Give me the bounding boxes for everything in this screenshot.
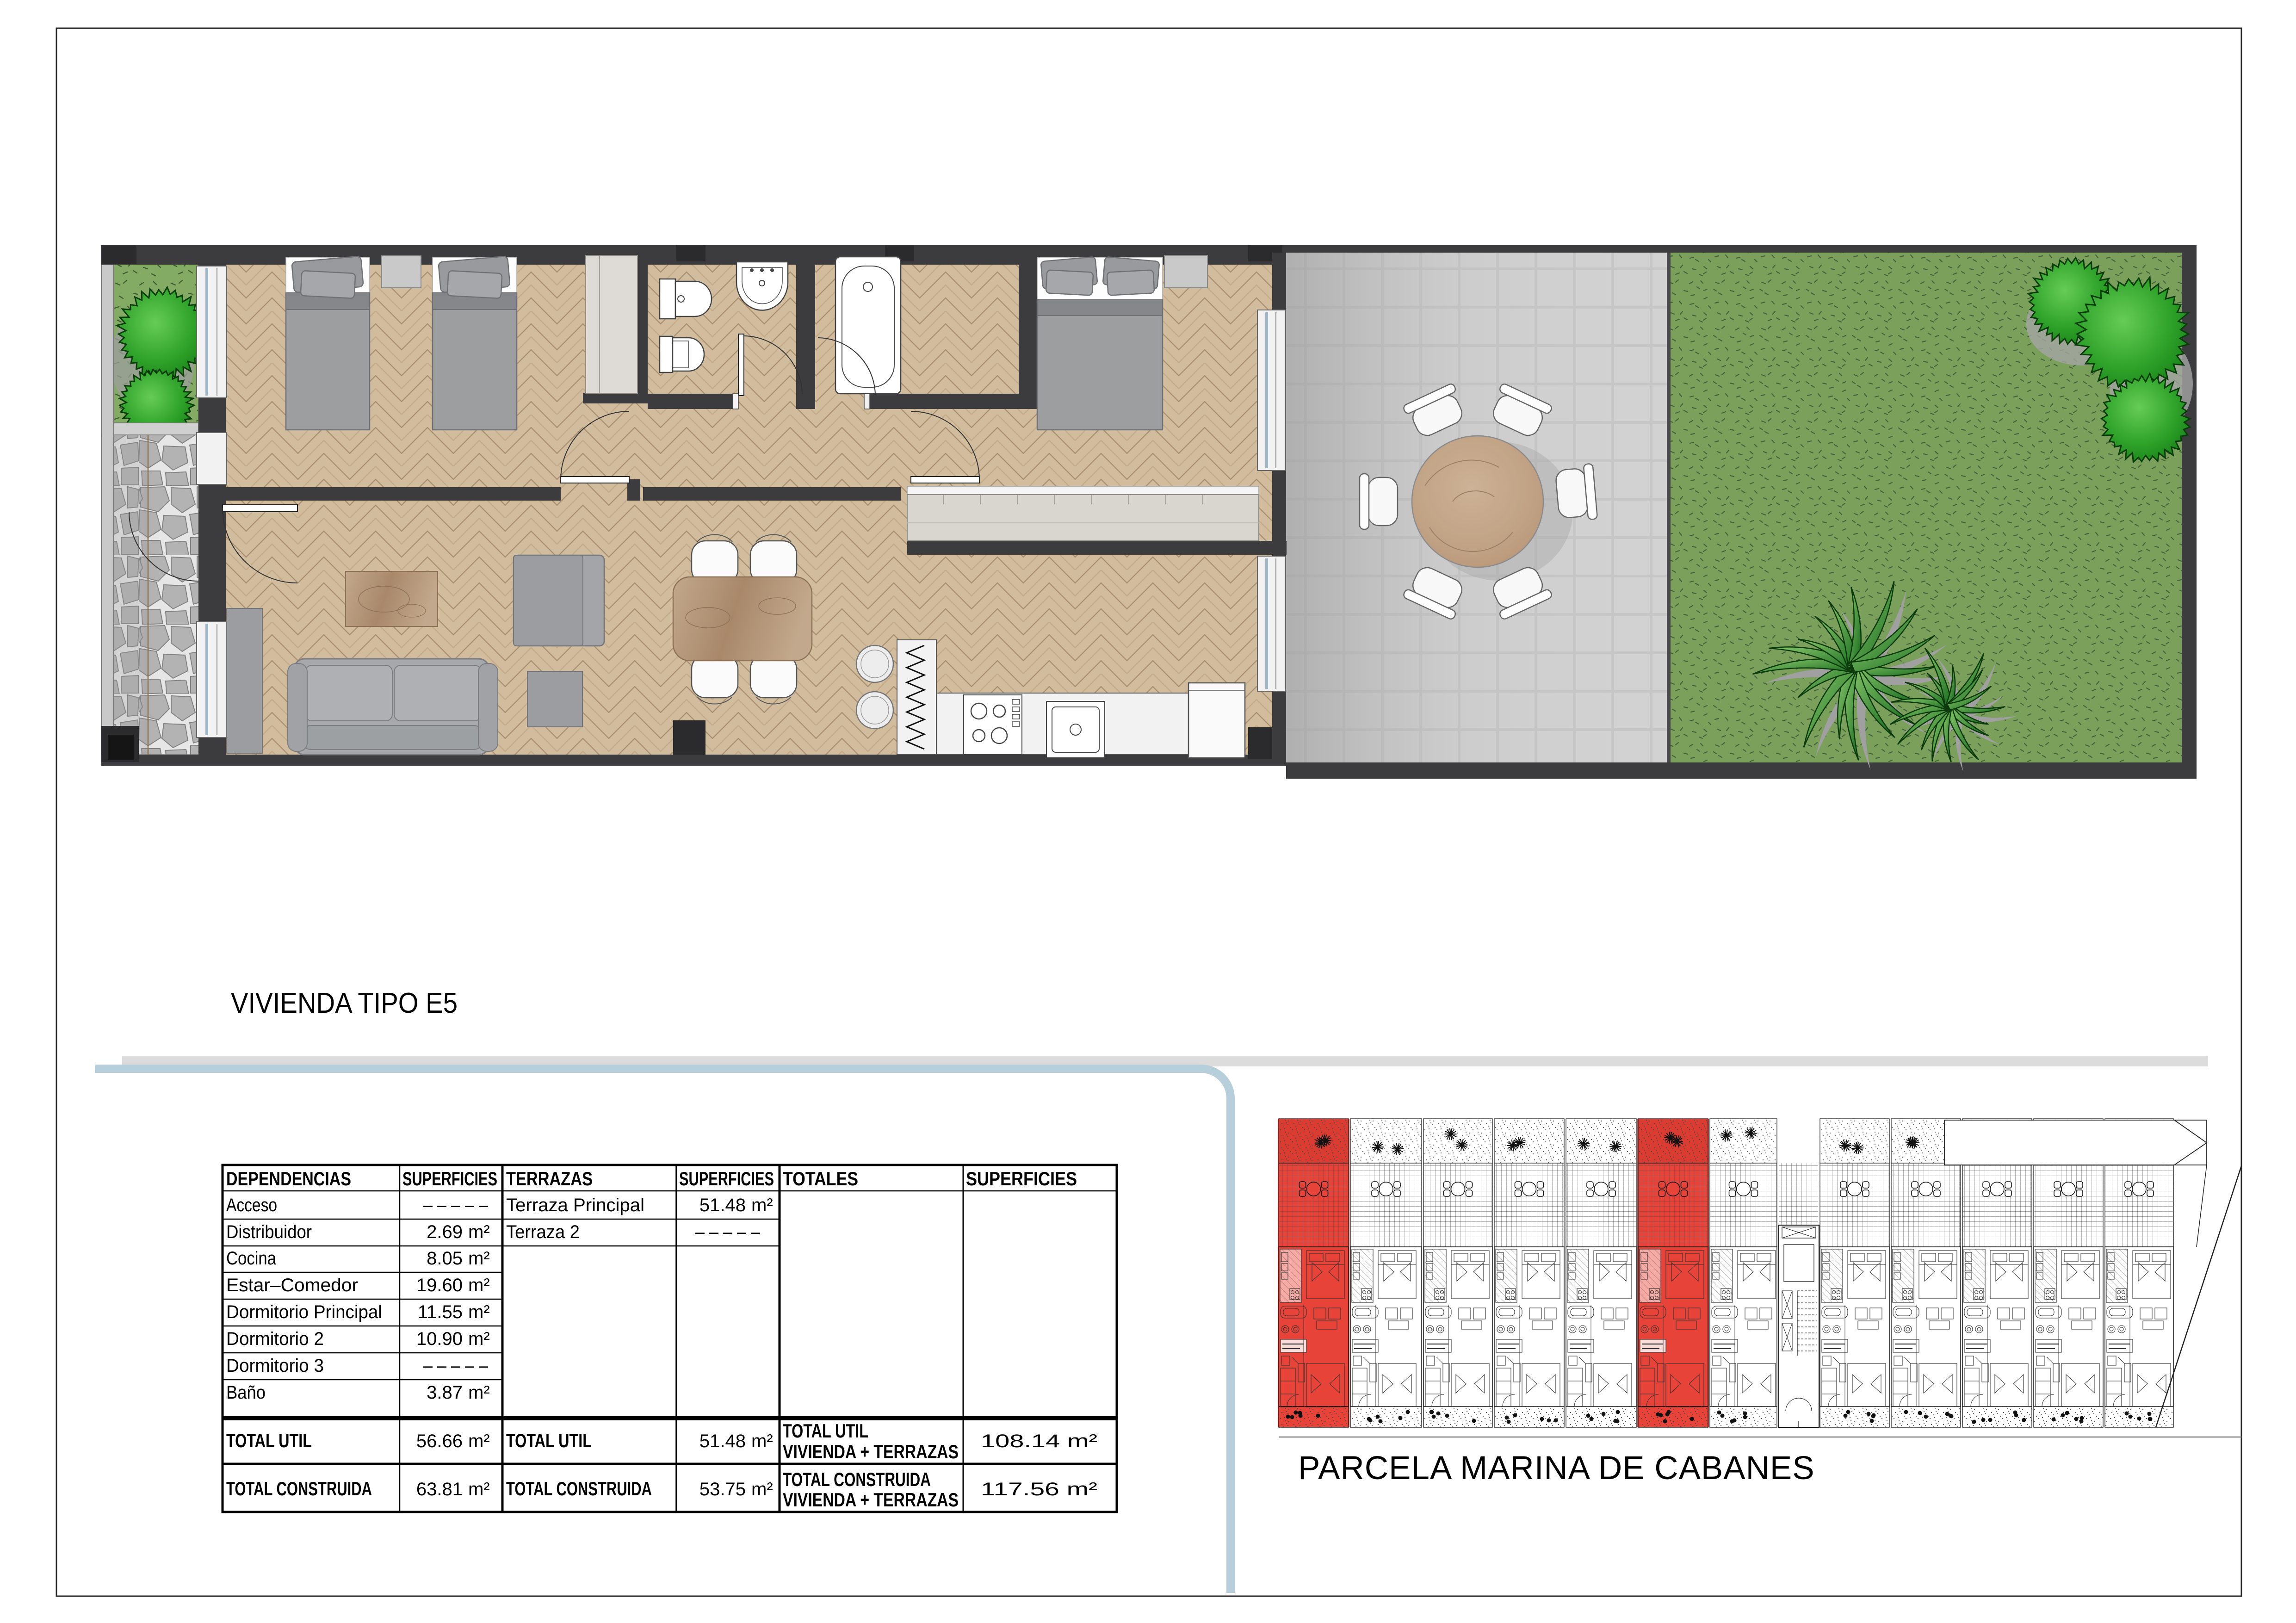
svg-text:– – – – –: – – – – – <box>423 1195 489 1215</box>
svg-text:Cocina: Cocina <box>226 1248 277 1269</box>
svg-text:SUPERFICIES: SUPERFICIES <box>679 1168 774 1189</box>
svg-text:Dormitorio 3: Dormitorio 3 <box>226 1356 324 1376</box>
svg-text:117.56 m²: 117.56 m² <box>981 1479 1097 1499</box>
svg-text:TOTAL CONSTRUIDA: TOTAL CONSTRUIDA <box>783 1468 931 1490</box>
svg-text:8.05: 8.05 <box>427 1248 463 1269</box>
svg-text:TERRAZAS: TERRAZAS <box>506 1168 593 1189</box>
svg-text:Dormitorio 2: Dormitorio 2 <box>226 1329 324 1349</box>
svg-text:– – – – –: – – – – – <box>695 1222 761 1242</box>
svg-text:53.75: 53.75 <box>699 1479 746 1499</box>
svg-text:Terraza Principal: Terraza Principal <box>506 1195 644 1215</box>
svg-text:PARCELA MARINA DE CABANES: PARCELA MARINA DE CABANES <box>1298 1450 1815 1487</box>
svg-text:Dormitorio Principal: Dormitorio Principal <box>226 1302 382 1322</box>
svg-text:m²: m² <box>751 1195 773 1215</box>
svg-text:51.48: 51.48 <box>699 1431 746 1451</box>
svg-text:m²: m² <box>751 1479 773 1499</box>
svg-text:TOTALES: TOTALES <box>783 1168 858 1189</box>
svg-text:TOTAL UTIL: TOTAL UTIL <box>506 1430 592 1451</box>
svg-text:63.81: 63.81 <box>416 1479 463 1499</box>
svg-text:SUPERFICIES: SUPERFICIES <box>402 1168 497 1189</box>
svg-text:Distribuidor: Distribuidor <box>226 1222 312 1242</box>
svg-text:m²: m² <box>468 1329 490 1349</box>
svg-text:m²: m² <box>468 1431 490 1451</box>
svg-text:51.48: 51.48 <box>699 1195 746 1215</box>
svg-text:m²: m² <box>468 1248 490 1269</box>
svg-text:VIVIENDA TIPO E5: VIVIENDA TIPO E5 <box>231 987 458 1019</box>
svg-text:56.66: 56.66 <box>416 1431 463 1451</box>
svg-text:VIVIENDA + TERRAZAS: VIVIENDA + TERRAZAS <box>783 1489 959 1511</box>
svg-text:m²: m² <box>468 1302 490 1322</box>
svg-text:– – – – –: – – – – – <box>423 1356 489 1376</box>
svg-text:SUPERFICIES: SUPERFICIES <box>966 1168 1077 1189</box>
svg-text:Terraza 2: Terraza 2 <box>506 1222 580 1242</box>
svg-text:3.87: 3.87 <box>427 1382 463 1403</box>
svg-text:Baño: Baño <box>226 1382 266 1403</box>
svg-text:19.60: 19.60 <box>416 1275 463 1295</box>
svg-text:m²: m² <box>468 1222 490 1242</box>
svg-text:Acceso: Acceso <box>226 1195 277 1215</box>
svg-text:10.90: 10.90 <box>416 1329 463 1349</box>
svg-text:m²: m² <box>468 1275 490 1295</box>
svg-text:TOTAL UTIL: TOTAL UTIL <box>783 1420 868 1442</box>
svg-text:11.55: 11.55 <box>418 1302 463 1322</box>
svg-text:VIVIENDA + TERRAZAS: VIVIENDA + TERRAZAS <box>783 1441 959 1462</box>
svg-text:m²: m² <box>751 1431 773 1451</box>
svg-text:TOTAL UTIL: TOTAL UTIL <box>226 1430 312 1451</box>
svg-text:m²: m² <box>468 1382 490 1403</box>
svg-text:Estar–Comedor: Estar–Comedor <box>226 1275 358 1295</box>
svg-text:TOTAL CONSTRUIDA: TOTAL CONSTRUIDA <box>506 1478 652 1499</box>
svg-text:2.69: 2.69 <box>427 1222 463 1242</box>
svg-text:TOTAL CONSTRUIDA: TOTAL CONSTRUIDA <box>226 1478 372 1499</box>
svg-text:DEPENDENCIAS: DEPENDENCIAS <box>226 1168 351 1189</box>
svg-text:m²: m² <box>468 1479 490 1499</box>
svg-text:108.14 m²: 108.14 m² <box>981 1431 1097 1451</box>
